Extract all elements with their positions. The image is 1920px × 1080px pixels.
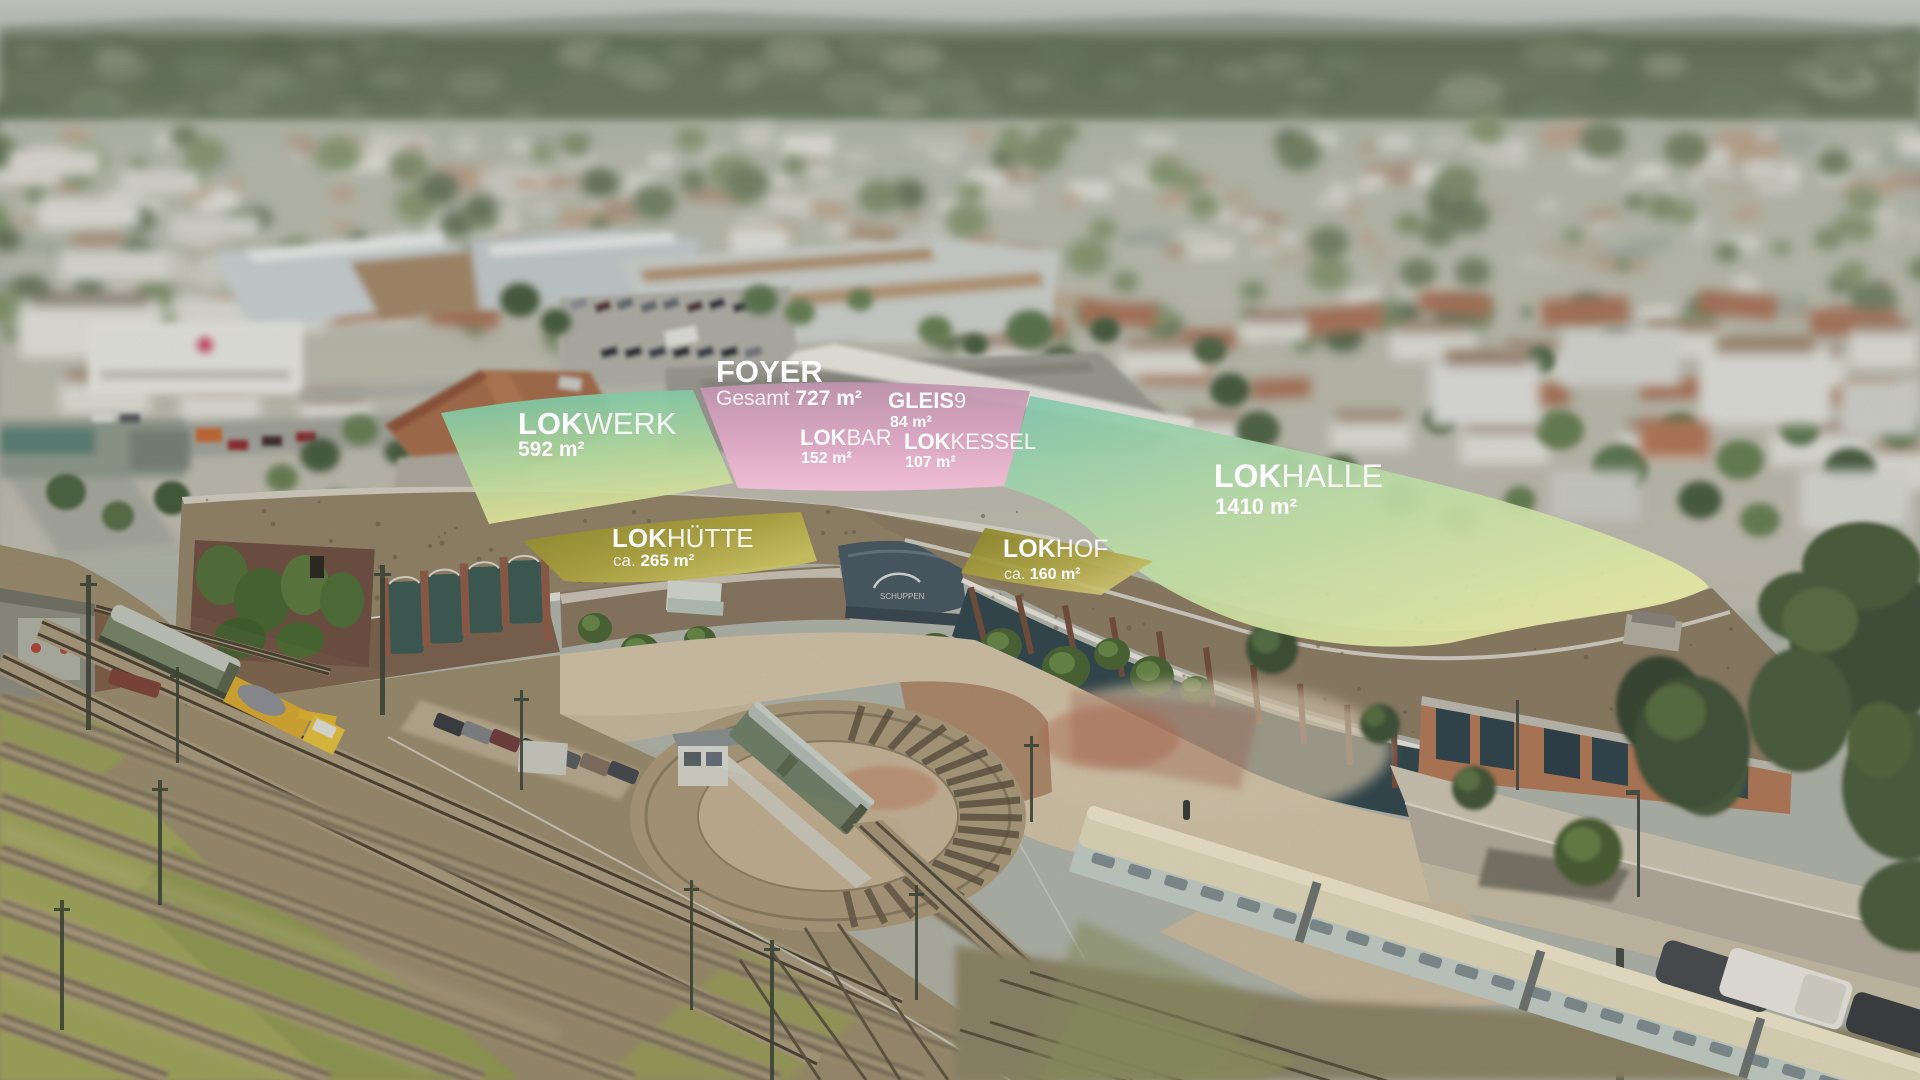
svg-text:ca. 160 m²: ca. 160 m² xyxy=(1004,566,1081,583)
svg-text:GLEIS9: GLEIS9 xyxy=(888,388,966,413)
svg-text:LOKKESSEL: LOKKESSEL xyxy=(904,429,1036,454)
svg-text:107 m²: 107 m² xyxy=(905,454,956,471)
svg-text:LOKHÜTTE: LOKHÜTTE xyxy=(612,523,754,553)
svg-text:LOKHOF: LOKHOF xyxy=(1003,535,1109,563)
svg-text:1410 m²: 1410 m² xyxy=(1215,494,1297,519)
svg-text:LOKHALLE: LOKHALLE xyxy=(1214,458,1383,494)
svg-text:ca. 265 m²: ca. 265 m² xyxy=(613,551,695,570)
svg-text:LOKWERK: LOKWERK xyxy=(518,406,677,441)
svg-text:Gesamt 727 m²: Gesamt 727 m² xyxy=(716,387,862,410)
svg-text:152 m²: 152 m² xyxy=(801,450,852,467)
svg-text:LOKBAR: LOKBAR xyxy=(800,425,892,450)
svg-text:FOYER: FOYER xyxy=(716,354,823,389)
svg-text:592 m²: 592 m² xyxy=(518,438,585,461)
